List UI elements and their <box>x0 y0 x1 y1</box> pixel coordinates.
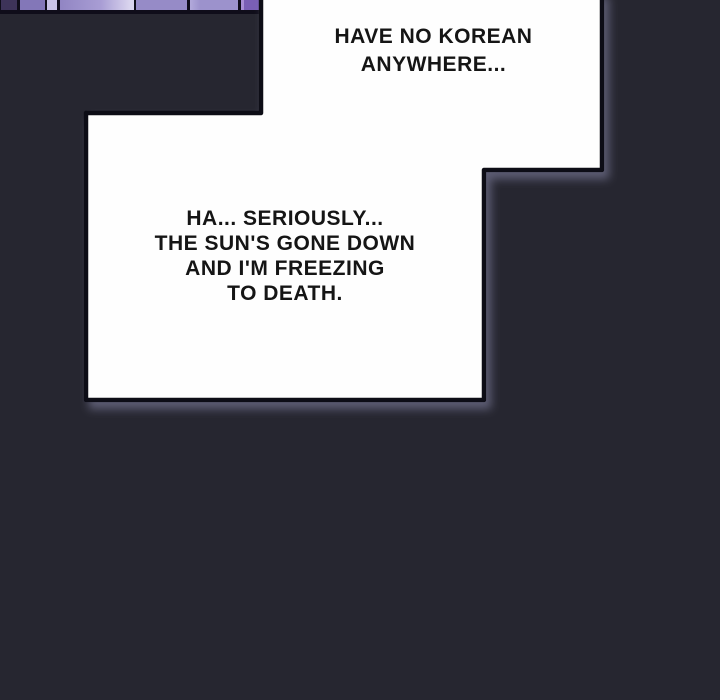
speech-bubbles-shape <box>0 0 720 700</box>
speech-line: HAVE NO KOREAN <box>265 23 602 51</box>
speech-line: THE SUN'S GONE DOWN <box>86 231 484 256</box>
speech-line: TO DEATH. <box>86 281 484 306</box>
speech-line: ANYWHERE... <box>265 51 602 79</box>
speech-bubble-top-text: HAVE NO KOREAN ANYWHERE... <box>265 23 602 79</box>
speech-bubble-main-text: HA... SERIOUSLY... THE SUN'S GONE DOWN A… <box>86 206 484 306</box>
speech-line: AND I'M FREEZING <box>86 256 484 281</box>
comic-page: HAVE NO KOREAN ANYWHERE... HA... SERIOUS… <box>0 0 720 700</box>
speech-line: HA... SERIOUSLY... <box>86 206 484 231</box>
